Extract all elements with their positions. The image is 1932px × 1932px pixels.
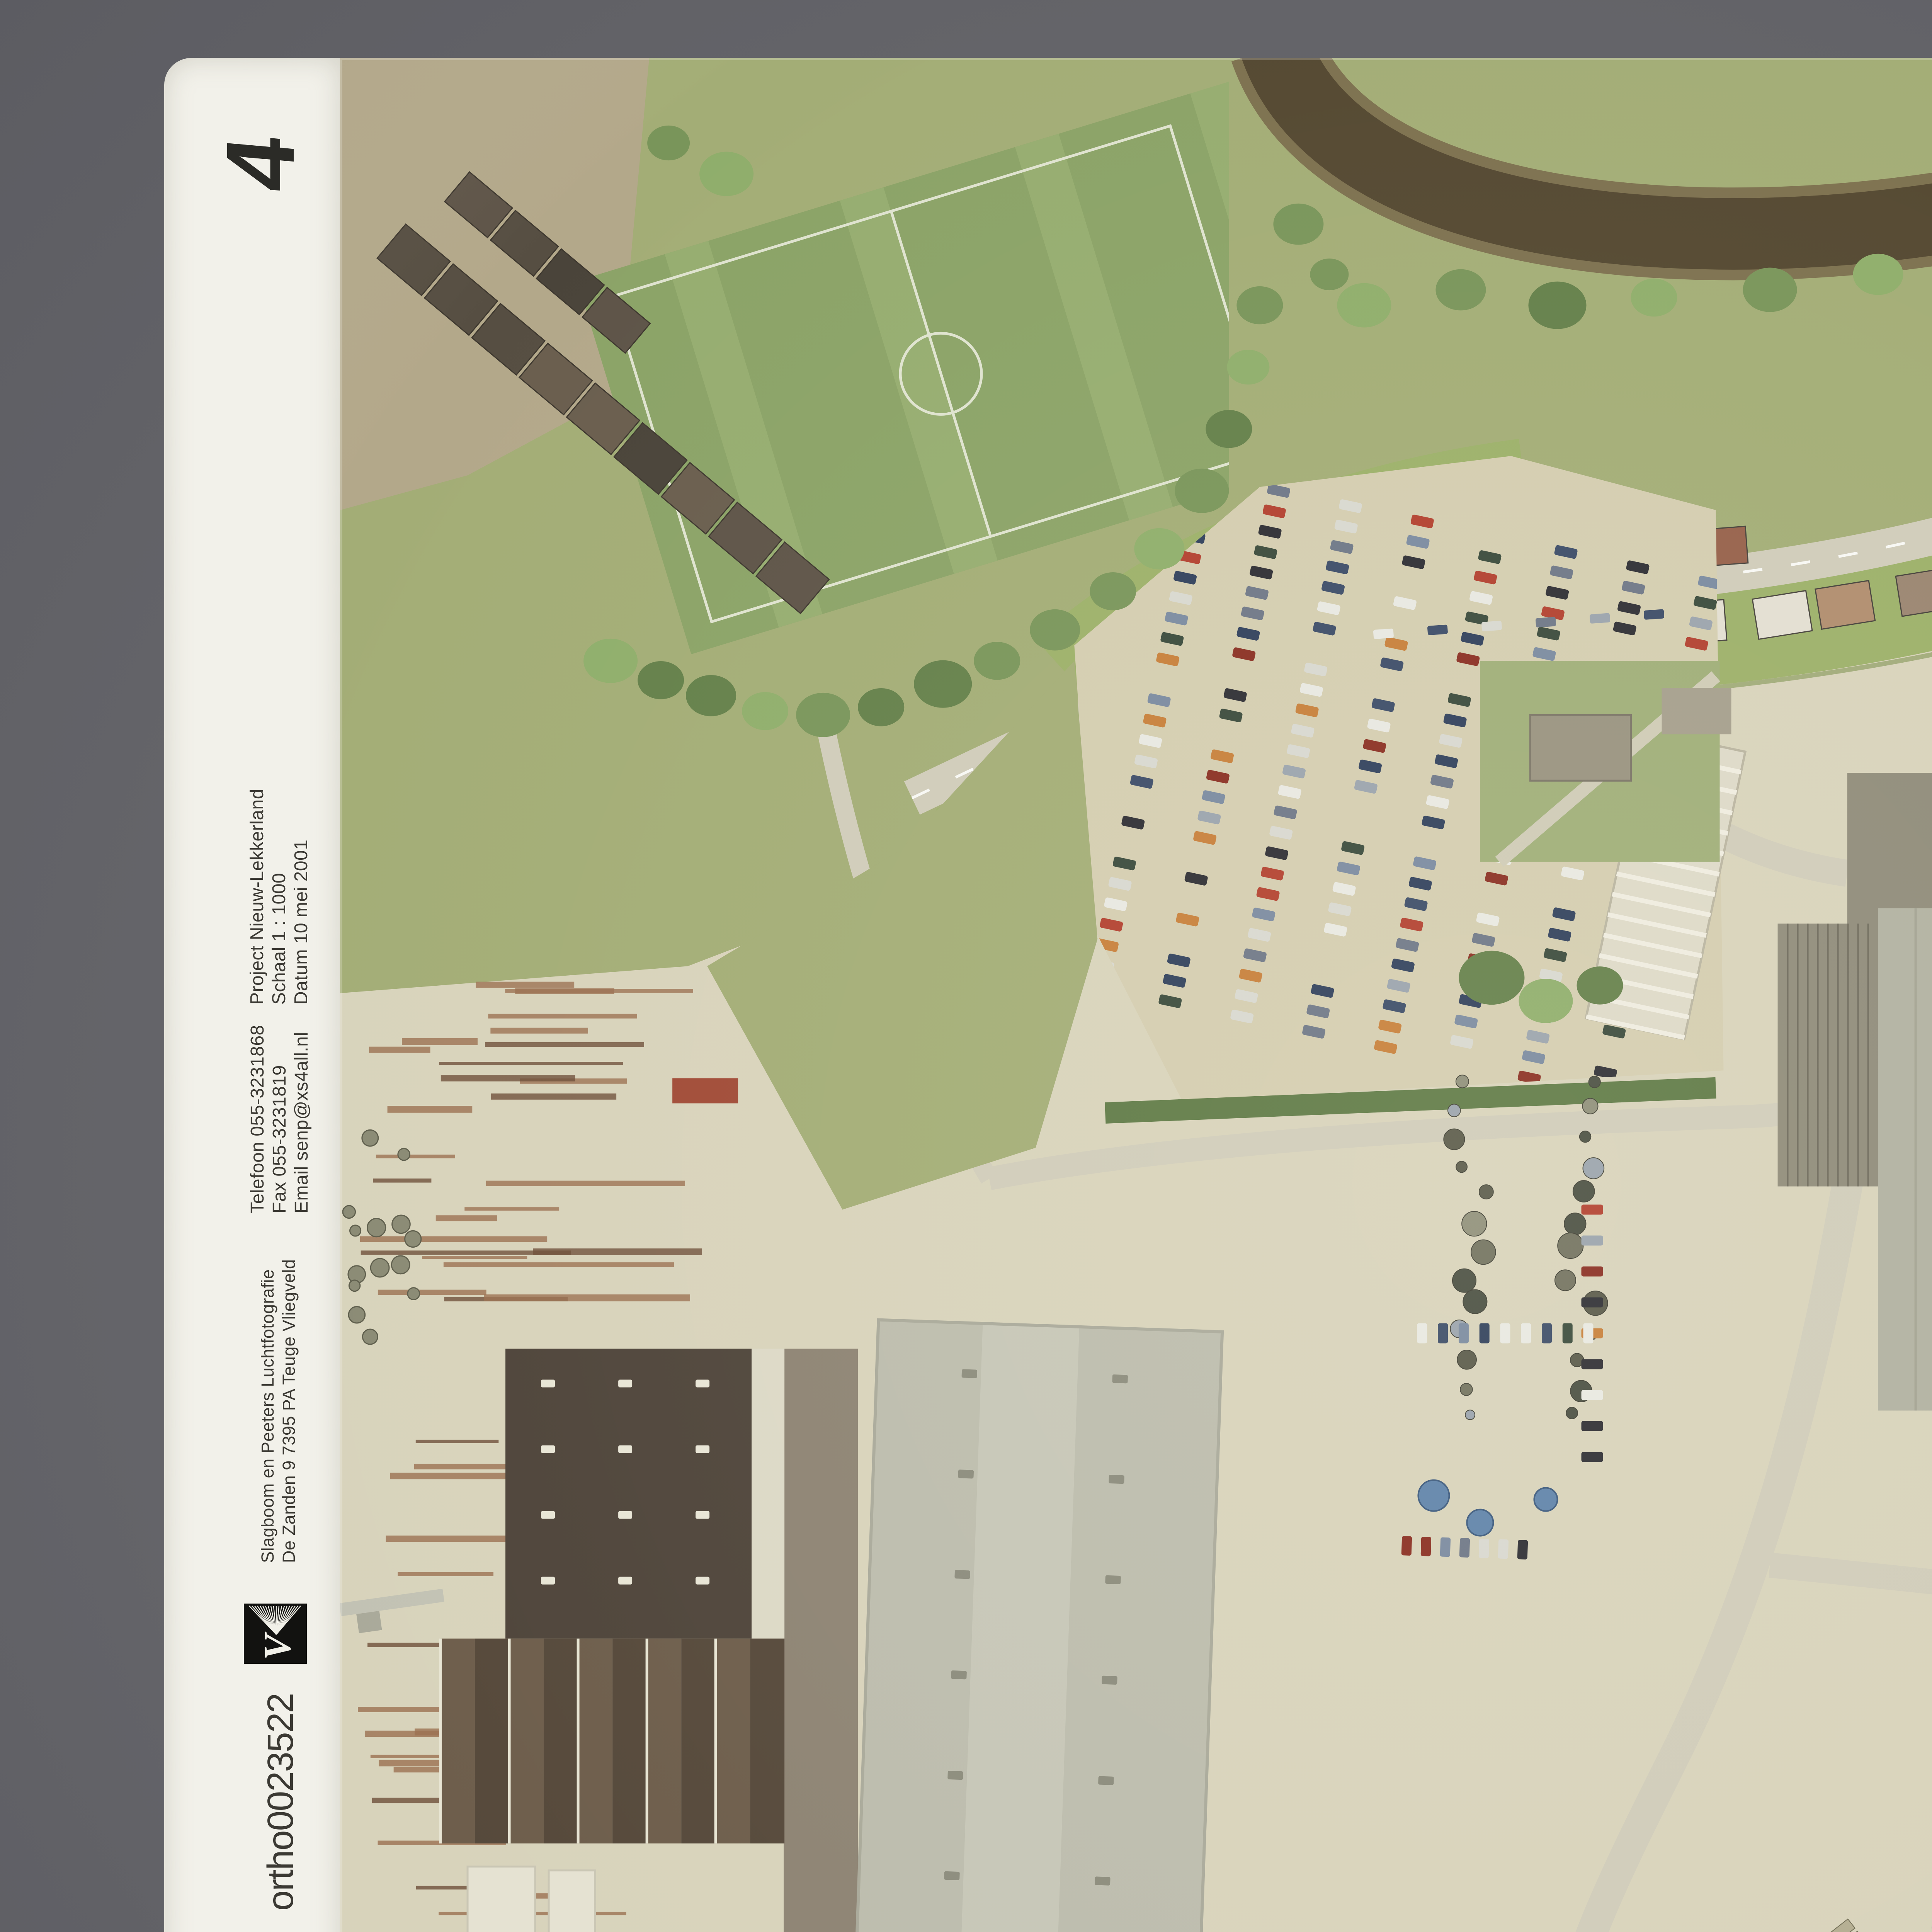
scanner-background: 4 Project Nieuw-Lekkerland Schaal 1 : 10… xyxy=(0,0,1932,1932)
slagboom-peeters-logo-icon: V xyxy=(244,1604,307,1664)
company-block: Slagboom en Peeters Luchtfotografie De Z… xyxy=(257,1259,299,1563)
photo-id: ortho0023522 xyxy=(261,1694,300,1911)
flight-date: Datum 10 mei 2001 xyxy=(290,789,312,1005)
fax-number: Fax 055-3231819 xyxy=(269,1025,291,1213)
company-name: Slagboom en Peeters Luchtfotografie xyxy=(257,1259,278,1563)
contact-block: Telefoon 055-3231868 Fax 055-3231819 Ema… xyxy=(247,1025,313,1213)
email-address: Email senp@xs4all.nl xyxy=(291,1025,313,1213)
photo-vignette xyxy=(340,58,1932,1932)
margin-strip: 4 Project Nieuw-Lekkerland Schaal 1 : 10… xyxy=(164,58,340,1932)
project-name: Project Nieuw-Lekkerland xyxy=(246,789,268,1005)
aerial-photo xyxy=(340,58,1932,1932)
company-address: De Zanden 9 7395 PA Teuge Vliegveld xyxy=(278,1259,299,1563)
sheet-number: 4 xyxy=(205,132,316,195)
phone-number: Telefoon 055-3231868 xyxy=(247,1025,269,1213)
project-info-block: Project Nieuw-Lekkerland Schaal 1 : 1000… xyxy=(246,789,312,1005)
map-scale: Schaal 1 : 1000 xyxy=(268,789,290,1005)
logo-letter: V xyxy=(256,1631,299,1660)
